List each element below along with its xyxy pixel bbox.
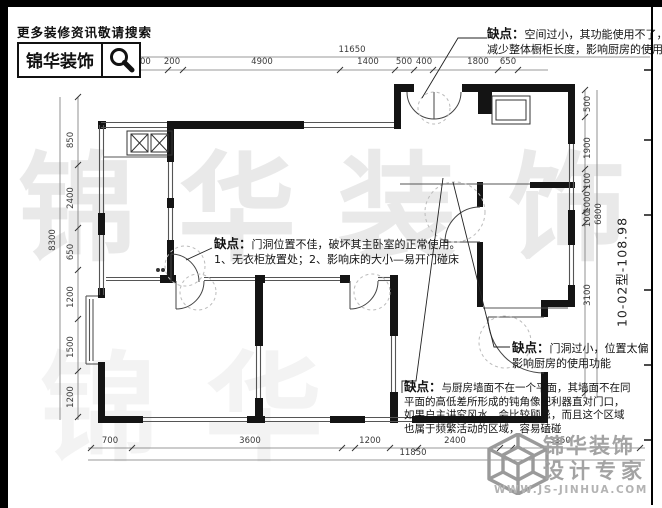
dim-right-seg: 3100 (583, 284, 593, 306)
dim-bottom-total: 11850 (399, 448, 426, 458)
dim-bottom-seg: 1200 (359, 436, 381, 446)
defect-label: 缺点： (214, 236, 252, 251)
dim-bottom-seg: 700 (102, 436, 118, 446)
brand-name: 锦华装饰 (19, 44, 103, 76)
leader-lines (186, 38, 510, 393)
dim-right-seg: 1900 (583, 137, 593, 159)
defect-text: 门洞过小，位置太偏 (550, 342, 649, 355)
dim-left-seg: 1200 (66, 286, 76, 308)
dim-left-seg: 1500 (66, 336, 76, 358)
dim-top-seg: 1800 (467, 57, 489, 67)
defect-text: 平面的高低差所形成的钝角像把利器直对门口， (404, 396, 625, 408)
defect-label: 缺点： (512, 340, 550, 355)
dim-bottom-seg: 3600 (239, 436, 261, 446)
dashed-circles (165, 92, 531, 368)
footer-brand: 锦华装饰 设计专家 (543, 434, 647, 484)
page-frame-right (651, 7, 653, 505)
stove-icon (492, 96, 530, 124)
dim-left-total: 8300 (48, 229, 58, 251)
floorplan-page: 锦 华 装 饰 锦 华 (0, 0, 662, 508)
defect-text: 影响厨房的使用功能 (512, 357, 611, 370)
defect-text: 减少整体橱柜长度，影响厨房的使用功能 (487, 43, 662, 56)
dim-top-total: 11650 (338, 45, 365, 55)
defect-text: 与厨房墙面不在一个平面，其墙面不在同 (442, 382, 631, 394)
page-frame-top (0, 0, 662, 7)
defect-text: 1、无衣柜放置处；2、影响床的大小—易开门碰床 (214, 253, 459, 266)
dim-top-seg: 1400 (357, 57, 379, 67)
magnifier-icon (103, 44, 139, 76)
dim-left-seg: 1200 (66, 386, 76, 408)
dim-right-seg: 500 (583, 96, 593, 112)
dim-top-seg: 650 (500, 57, 516, 67)
footer-brand-line2: 设计专家 (543, 458, 647, 484)
page-frame-left (0, 0, 8, 508)
dim-left-seg: 2400 (66, 187, 76, 209)
defect-note-wall-plane: 缺点：与厨房墙面不在一个平面，其墙面不在同 平面的高低差所形成的钝角像把利器直对… (404, 380, 631, 436)
defect-note-kitchen-space: 缺点：空间过小，其功能使用不了， 减少整体橱柜长度，影响厨房的使用功能 (487, 26, 662, 57)
footer-brand-line1: 锦华装饰 (543, 434, 647, 458)
defect-text: 空间过小，其功能使用不了， (525, 28, 662, 41)
dim-left-seg: 850 (66, 132, 76, 148)
dim-right-seg: 1000 (583, 191, 593, 213)
footer-website: WWW.JS-JINHUA.COM (494, 484, 648, 496)
dim-right-seg: 100 (583, 211, 593, 227)
washing-machine-icon (127, 131, 172, 155)
windows-and-partitions (86, 123, 574, 422)
defect-label: 缺点： (487, 26, 525, 41)
dim-top-seg: 400 (416, 57, 432, 67)
dim-left-seg: 650 (66, 244, 76, 260)
dim-right-seg: 100 (583, 173, 593, 189)
defect-note-master-door: 缺点：门洞位置不佳，破坏其主卧室的正常使用。 1、无衣柜放置处；2、影响床的大小… (214, 236, 461, 267)
dim-top-seg: 200 (164, 57, 180, 67)
defect-text: 门洞位置不佳，破坏其主卧室的正常使用。 (252, 238, 461, 251)
defect-note-kitchen-door: 缺点：门洞过小，位置太偏 影响厨房的使用功能 (512, 340, 649, 371)
door-swings (171, 92, 544, 373)
defect-label: 缺点： (404, 379, 442, 394)
defect-text: 如果户主讲究风水，会比较顾忌，而且这个区域 (404, 409, 625, 421)
dim-top-seg: 500 (396, 57, 412, 67)
dim-right-total: 6800 (594, 203, 604, 225)
dim-top-seg: 4900 (251, 57, 273, 67)
plan-type-label: 10-02型-108.98 (612, 217, 631, 327)
brand-search-box: 锦华装饰 (17, 42, 141, 78)
dim-bottom-seg: 2400 (444, 436, 466, 446)
header-tagline: 更多装修资讯敬请搜索 (17, 22, 152, 41)
